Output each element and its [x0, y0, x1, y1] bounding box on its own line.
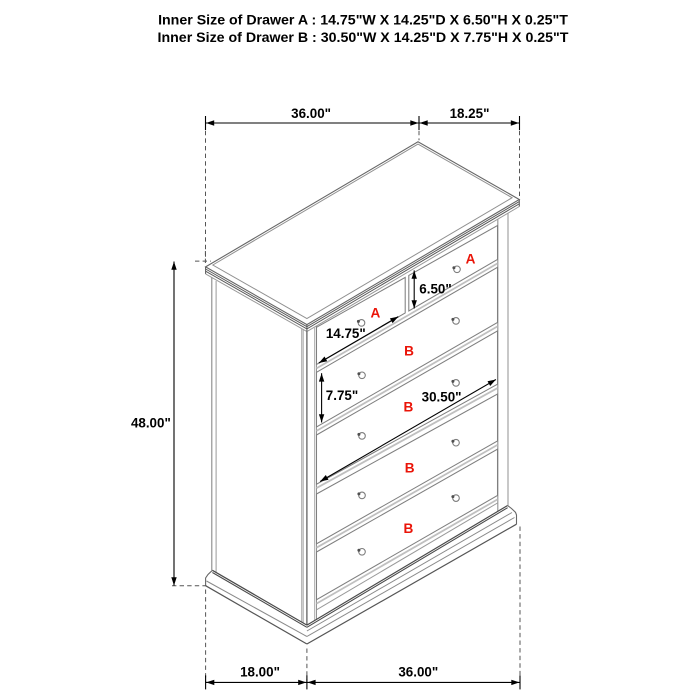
svg-text:B: B	[403, 521, 413, 536]
svg-text:18.00": 18.00"	[240, 664, 280, 679]
svg-text:B: B	[404, 344, 414, 359]
svg-text:30.50": 30.50"	[422, 389, 462, 404]
svg-text:Inner Size of Drawer A : 14.75: Inner Size of Drawer A : 14.75"W X 14.25…	[158, 13, 568, 29]
svg-text:36.00": 36.00"	[291, 106, 331, 121]
svg-text:B: B	[405, 461, 415, 476]
svg-text:A: A	[370, 306, 380, 321]
svg-text:A: A	[466, 252, 476, 267]
svg-text:14.75": 14.75"	[326, 326, 366, 341]
svg-text:7.75": 7.75"	[326, 388, 358, 403]
svg-text:48.00": 48.00"	[131, 416, 171, 431]
svg-text:36.00": 36.00"	[398, 664, 438, 679]
svg-text:B: B	[403, 400, 413, 415]
svg-text:6.50": 6.50"	[419, 281, 451, 296]
svg-text:18.25": 18.25"	[450, 106, 490, 121]
svg-text:Inner Size of Drawer B : 30.50: Inner Size of Drawer B : 30.50"W X 14.25…	[158, 30, 569, 46]
